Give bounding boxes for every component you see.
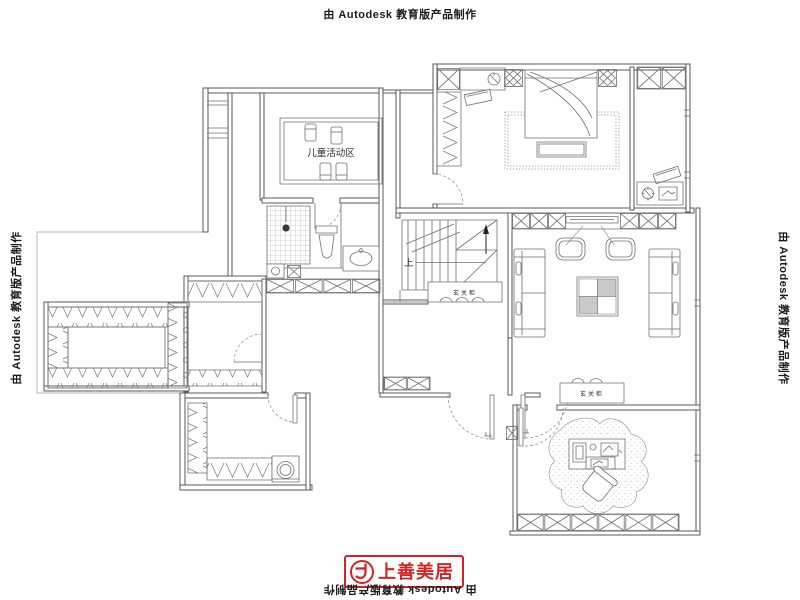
bath-fixture-icons xyxy=(267,264,301,278)
watermark-left: 由 Autodesk 教育版产品制作 xyxy=(8,223,24,393)
balcony xyxy=(637,166,683,205)
floor-drain-icon xyxy=(642,187,655,201)
door-arc-entry-left xyxy=(448,395,494,439)
toilet-icon xyxy=(316,226,337,258)
walkin-closet xyxy=(48,281,262,388)
bedroom-desk-icon xyxy=(464,89,492,105)
bathroom xyxy=(267,203,379,278)
watermark-right: 由 Autodesk 教育版产品制作 xyxy=(776,223,792,393)
study-room xyxy=(549,418,648,513)
bedroom xyxy=(437,68,619,169)
appliance-icon xyxy=(659,187,677,200)
tv-cabinet-band xyxy=(512,213,676,245)
column-glyph xyxy=(438,69,460,90)
washbasin-icon xyxy=(343,246,379,271)
wardrobe-hatch xyxy=(437,92,461,166)
window-glyph-bath-south xyxy=(266,279,380,293)
bedroom-cabinet xyxy=(460,68,505,90)
window-glyph-study-south xyxy=(517,514,679,531)
laundry-room xyxy=(188,403,299,482)
door-arc-bedroom xyxy=(433,174,463,204)
floor-cushion-icon xyxy=(556,238,635,260)
sofa-icon xyxy=(649,249,680,337)
kids-area-label: 儿童活动区 xyxy=(307,147,355,159)
tea-table-icon xyxy=(577,277,618,316)
watermark-top: 由 Autodesk 教育版产品制作 xyxy=(0,6,800,22)
stairs: 上 xyxy=(402,220,497,290)
entry-cabinet-stairs-label: 玄关柜 xyxy=(453,289,477,297)
tv-icon xyxy=(566,217,618,224)
stairs-up-arrow xyxy=(483,224,489,254)
watermark-bottom: 由 Autodesk 教育版产品制作 xyxy=(0,582,800,598)
desk-icon xyxy=(569,439,625,469)
floorplan-page: 由 Autodesk 教育版产品制作 由 Autodesk 教育版产品制作 由 … xyxy=(0,0,800,600)
bed-bench-icon xyxy=(537,142,586,157)
sofa-icon xyxy=(514,249,545,337)
shangshan-meiju-logo-icon xyxy=(349,559,375,585)
kids-room: 儿童活动区 xyxy=(280,118,382,184)
bed-icon xyxy=(525,70,597,138)
nightstand-icon xyxy=(505,70,523,87)
floorplan-drawing: 儿童活动区 xyxy=(0,0,800,600)
entry-cabinet-stairs: 玄关柜 xyxy=(428,282,502,302)
sitting-room xyxy=(512,213,680,337)
wardrobe-hatch xyxy=(168,303,187,388)
brand-logo-text: 上善美居 xyxy=(378,563,454,581)
entry-cabinet-hall: 玄关柜 xyxy=(560,379,624,404)
door-arc-bathroom xyxy=(315,203,341,229)
nightstand-icon xyxy=(599,70,617,87)
ironing-board-icon xyxy=(653,166,681,184)
door-arc-laundry xyxy=(268,395,297,423)
shower-icon xyxy=(267,206,310,264)
stairs-up-label: 上 xyxy=(404,258,414,269)
washing-machine-icon xyxy=(272,456,299,482)
door-arc-closet xyxy=(234,334,262,362)
window-glyph-entry xyxy=(384,377,430,390)
entry-cabinet-hall-label: 玄关柜 xyxy=(580,390,604,398)
